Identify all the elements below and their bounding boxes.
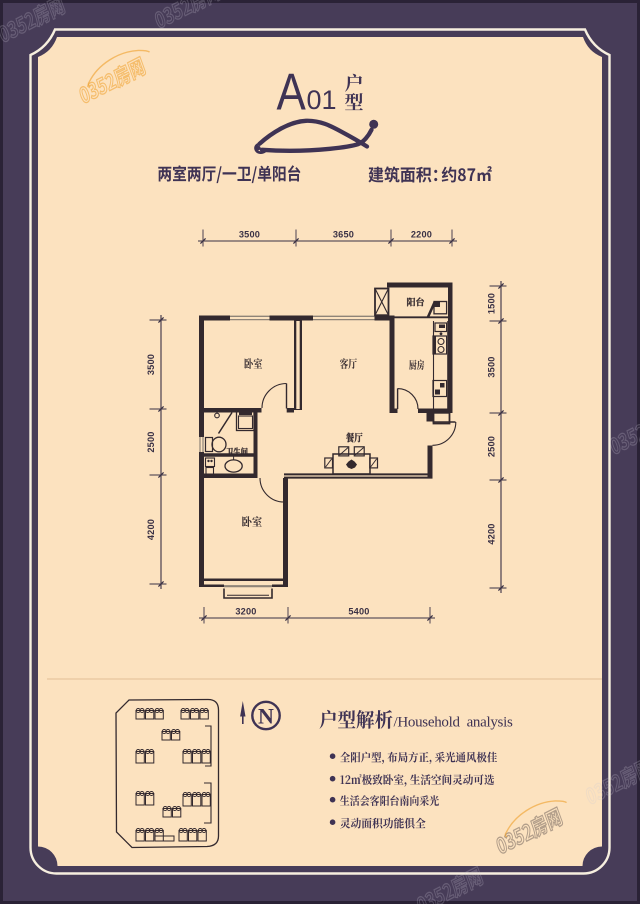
svg-text:/Household analysis: /Household analysis [394, 715, 513, 731]
svg-text:5400: 5400 [348, 607, 369, 617]
svg-text:3500: 3500 [146, 354, 156, 375]
svg-text:3500: 3500 [239, 230, 260, 240]
svg-text:01: 01 [307, 85, 337, 115]
svg-text:3650: 3650 [333, 230, 354, 240]
svg-text:4200: 4200 [146, 519, 156, 540]
svg-text:N: N [258, 703, 274, 728]
svg-text:4200: 4200 [487, 523, 497, 544]
svg-text:A: A [277, 63, 306, 121]
svg-text:3200: 3200 [235, 607, 256, 617]
svg-text:1500: 1500 [487, 293, 497, 314]
svg-text:2500: 2500 [487, 436, 497, 457]
svg-text:3500: 3500 [487, 356, 497, 377]
svg-text:2200: 2200 [411, 230, 432, 240]
svg-text:2500: 2500 [146, 431, 156, 452]
